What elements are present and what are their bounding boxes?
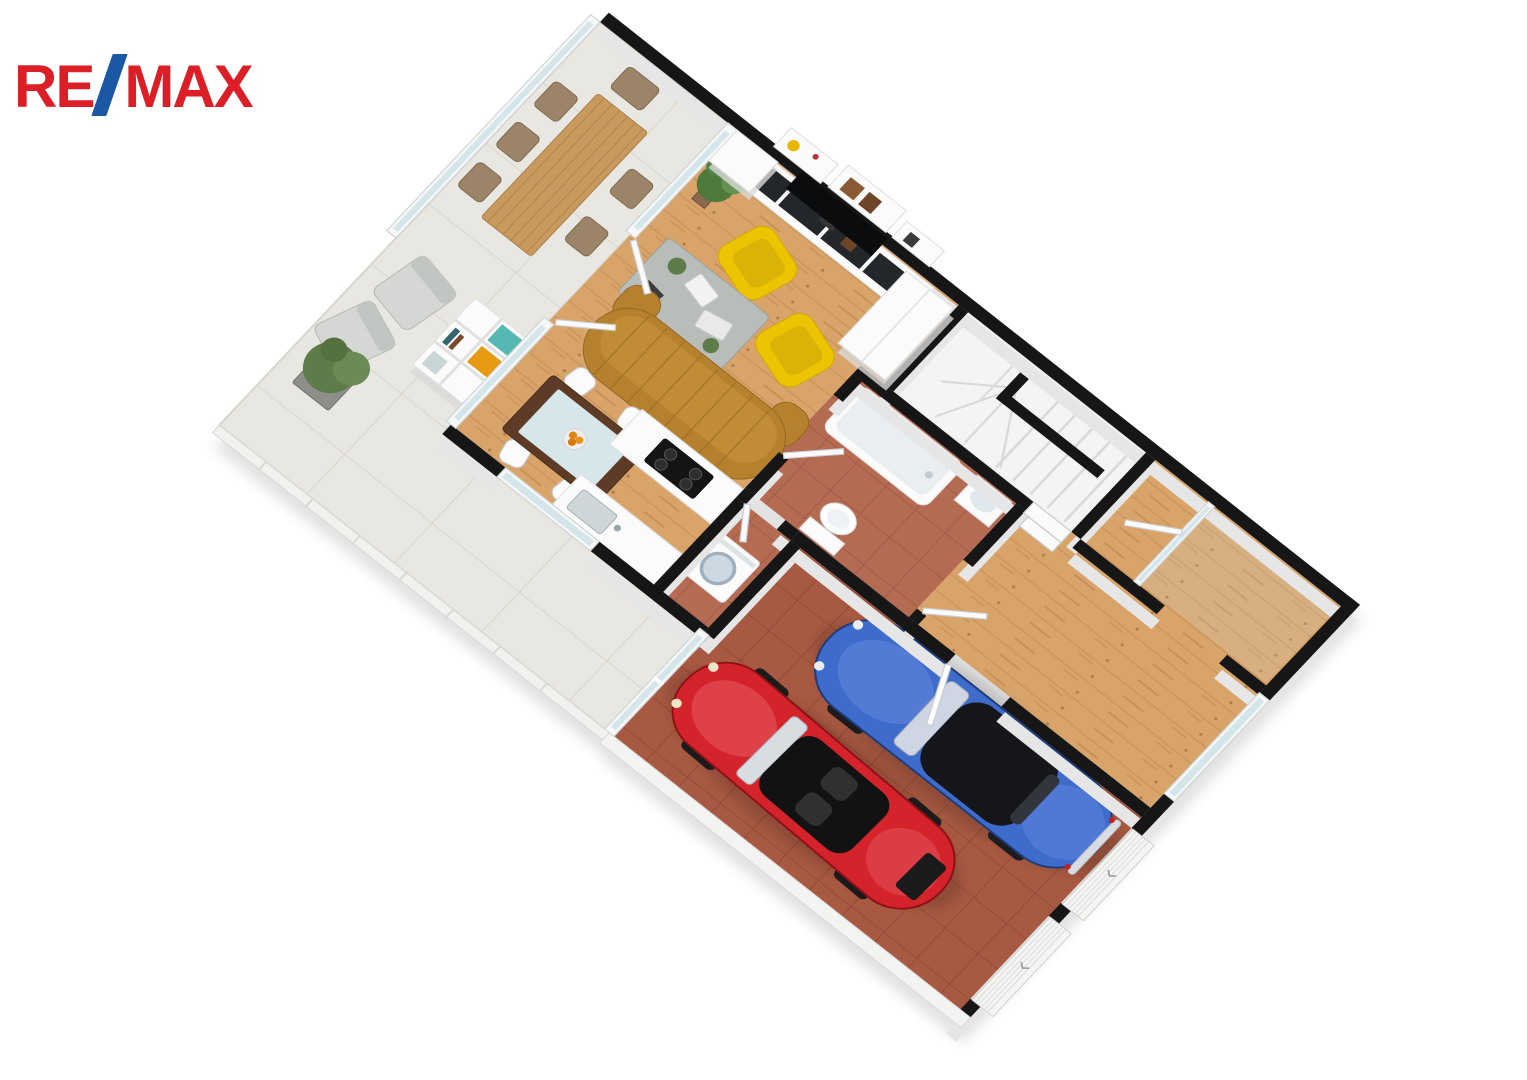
floorplan-page: RE / MAX [0, 0, 1527, 1080]
floorplan-render [0, 0, 1527, 1080]
floor-plan-scene [200, 0, 1392, 1044]
